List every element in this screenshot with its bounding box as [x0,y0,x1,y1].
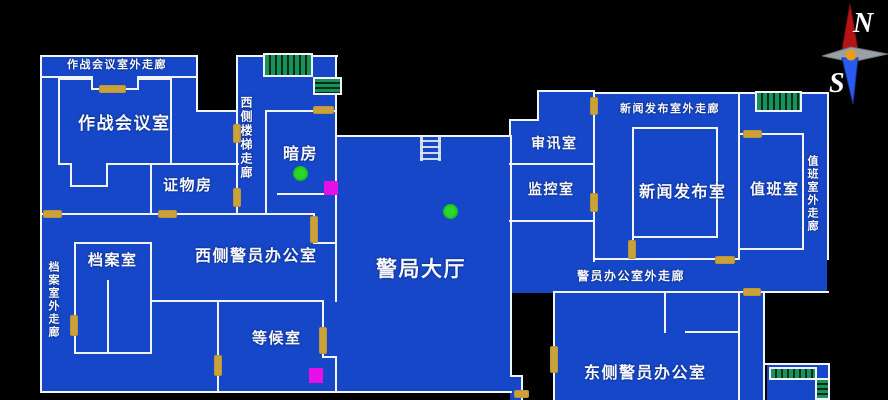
label-archive-corridor: 档案室外走廊 [45,261,61,339]
door-marker [233,188,241,207]
label-archive-room: 档案室 [88,253,138,270]
label-evidence-room: 证物房 [163,178,213,195]
wall [150,242,152,354]
label-ops-room: 作战会议室 [78,115,171,134]
label-main-hall: 警局大厅 [376,258,466,281]
stairs-northeast [755,91,802,112]
door-marker [313,106,334,114]
door-marker [99,85,126,93]
stairs-west-lower [313,77,342,95]
wall [763,293,765,400]
wall [196,110,238,112]
door-marker [590,97,598,115]
wall [40,55,42,393]
door-marker [214,355,222,376]
label-east-office: 东侧警员办公室 [584,365,707,383]
label-waiting-room: 等候室 [252,331,302,348]
wall [40,213,337,215]
label-duty-corridor: 值班室外走廊 [804,155,820,233]
wall-gap [315,213,337,215]
wall [335,55,337,137]
magenta-marker-waiting [309,368,323,383]
magenta-marker-darkroom [324,181,338,195]
wall [40,391,337,393]
wall [74,352,152,354]
label-press-corridor: 新闻发布室外走廊 [620,103,720,115]
wall [107,280,109,354]
stairs-southeast [769,367,817,380]
wall [685,331,740,333]
label-duty-room: 值班室 [750,182,800,199]
label-west-office: 西侧警员办公室 [195,248,318,266]
door-marker [514,390,529,398]
wall [335,356,337,393]
room-region-corridor-upper [512,222,593,262]
label-monitor-room: 监控室 [528,183,575,198]
label-press-room: 新闻发布室 [639,184,727,202]
wall [593,92,595,262]
room-region-interrogation-top [537,90,593,121]
compass-center-dot [846,50,857,61]
stairs-southeast-turn [815,378,830,400]
wall [553,291,829,293]
wall [509,119,511,137]
wall [510,135,512,377]
item-dot-darkroom [293,166,308,181]
wall [335,391,512,393]
label-ops-corridor: 作战会议室外走廊 [67,59,167,71]
wall [664,293,666,333]
wall [537,90,539,121]
label-interrogation-room: 审讯室 [531,137,578,152]
stairs-west-upper [263,53,313,77]
door-marker [743,130,762,138]
door-marker [743,288,761,296]
wall [40,55,198,57]
wall [217,300,219,392]
door-marker [310,216,318,243]
wall [196,55,198,112]
wall [509,119,539,121]
door-marker [319,327,327,354]
wall [74,242,152,244]
wall [738,293,740,400]
item-dot-hall [443,204,458,219]
door-marker [550,346,558,373]
compass-south-label: S [829,68,845,100]
label-officer-corridor: 警员办公室外走廊 [577,270,685,283]
wall [509,220,595,222]
wall [265,110,267,215]
wall [827,93,829,260]
room-outline-ops-alcove [70,163,108,187]
door-marker [158,210,177,218]
door-marker [715,256,735,264]
wall [74,242,76,354]
wall [150,163,239,165]
door-marker [43,210,62,218]
compass-north-label: N [853,8,873,40]
wall [150,300,324,302]
wall [509,163,595,165]
door-marker [628,240,636,259]
door-marker [590,193,598,212]
room-region-east-office [553,293,740,400]
wall [537,90,595,92]
door-marker [70,315,78,336]
room-region-southeast-corridor [740,293,765,400]
wall [765,363,830,365]
police-station-map: 作战会议室外走廊 作战会议室 证物房 西侧楼梯走廊 暗房 档案室外走廊 档案室 … [0,0,888,400]
wall [335,135,337,302]
label-darkroom: 暗房 [283,146,318,164]
room-region-west-block [40,213,337,392]
ladder-icon [420,136,441,161]
label-west-stairs-corridor: 西侧楼梯走廊 [238,96,255,180]
wall [150,163,152,215]
room-outline-press-room [632,127,718,238]
